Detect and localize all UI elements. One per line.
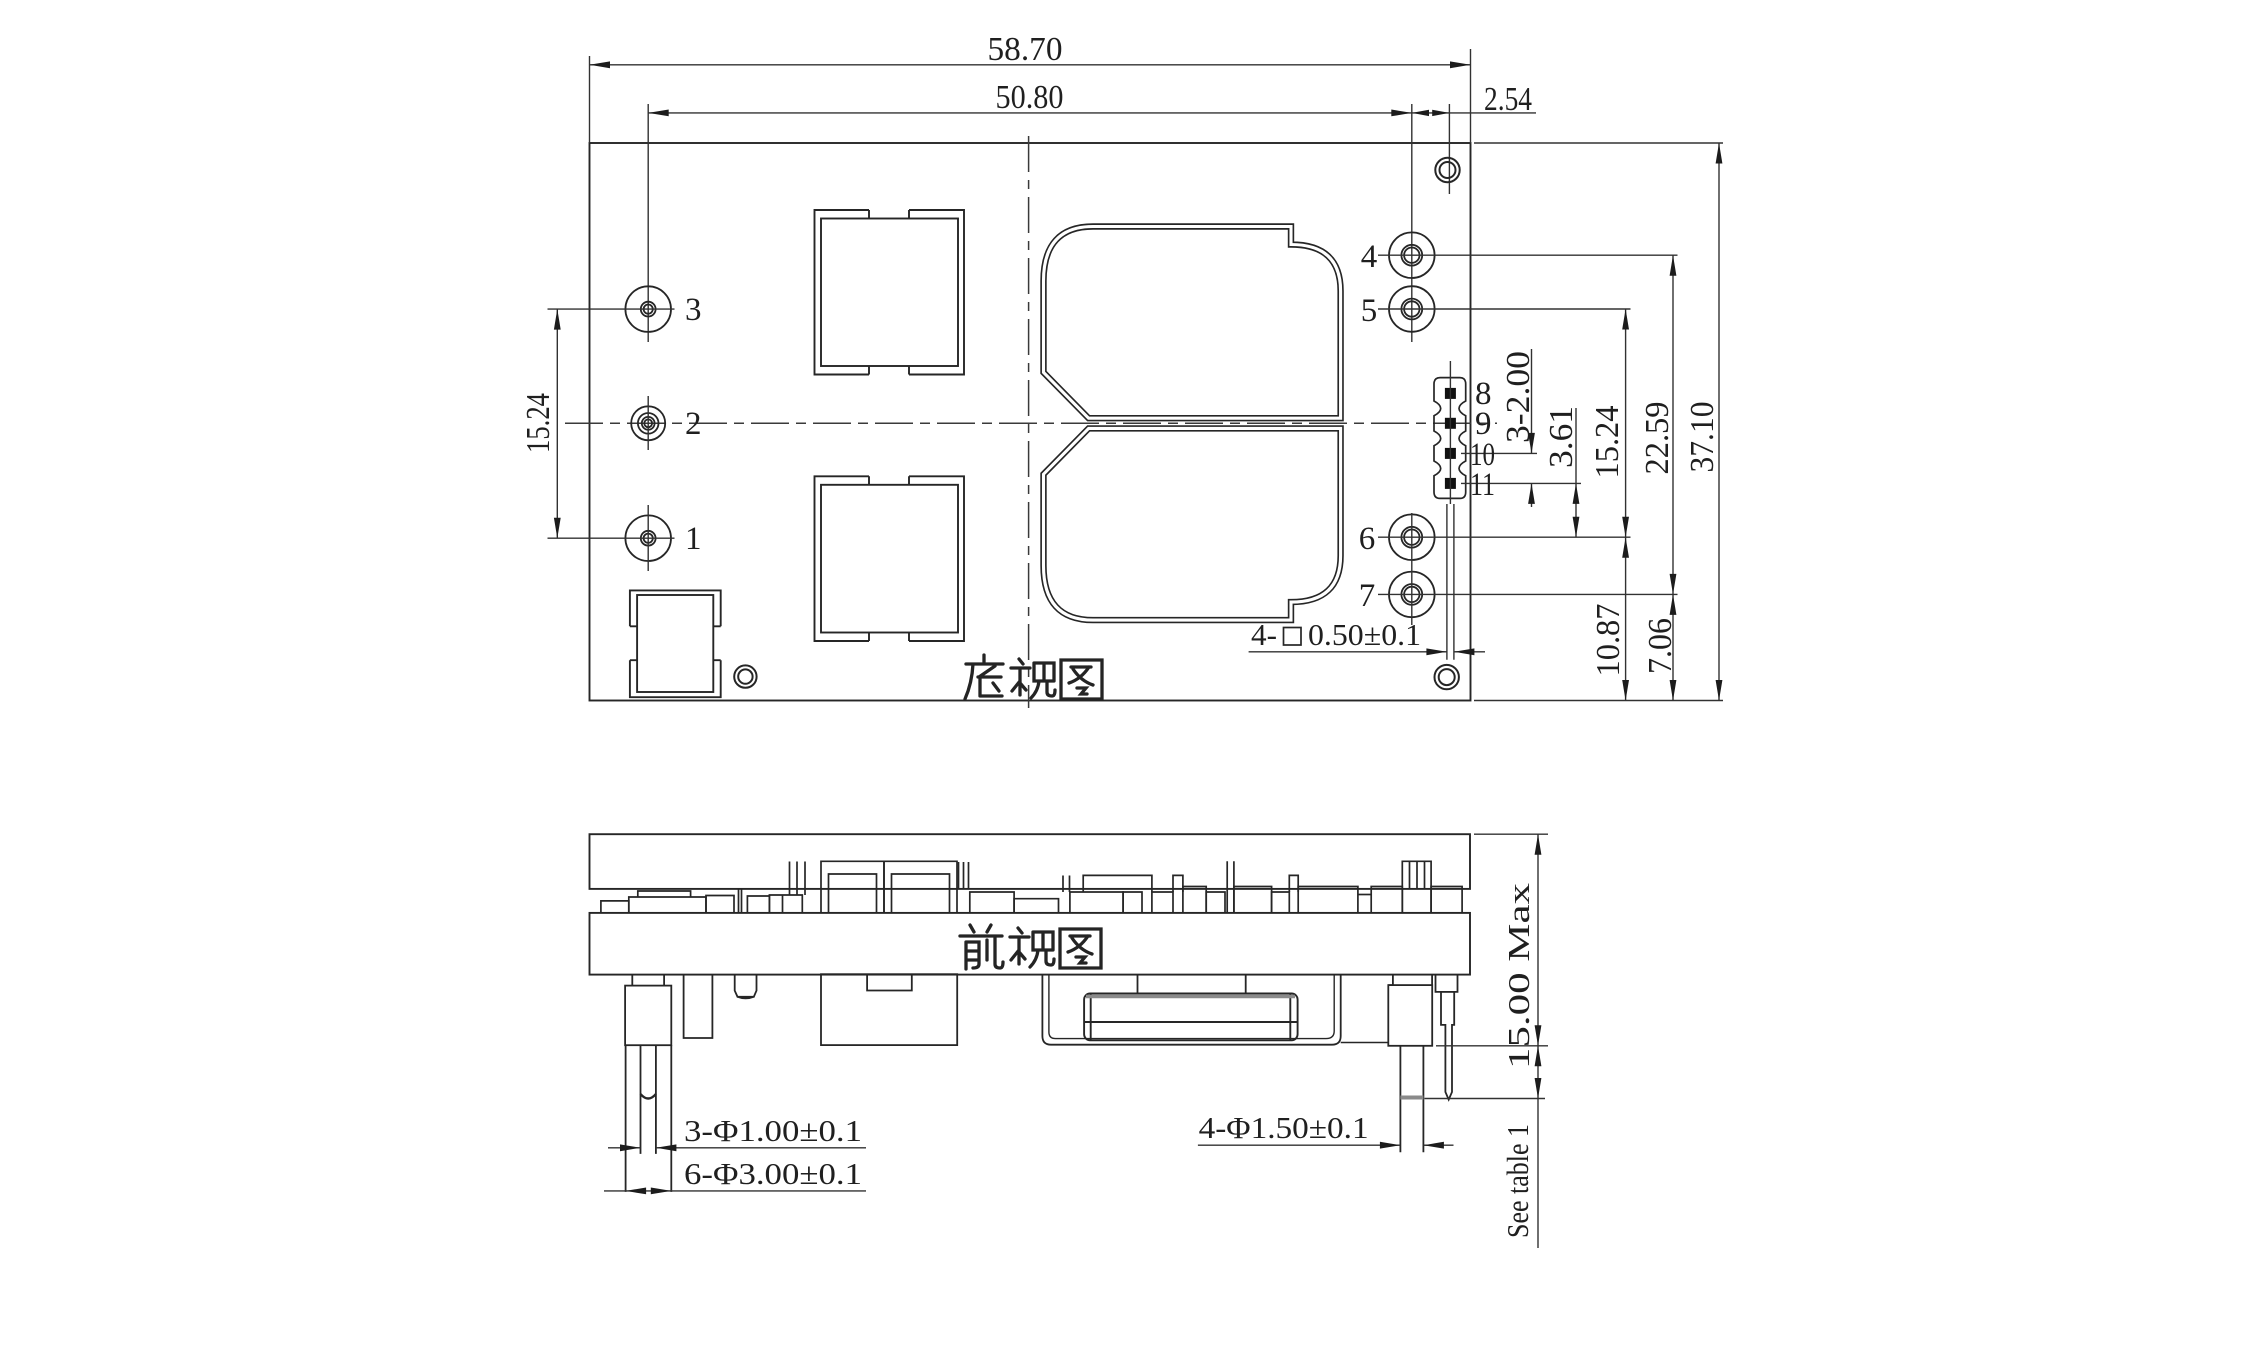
svg-text:4-Φ1.50±0.1: 4-Φ1.50±0.1 <box>1199 1110 1369 1145</box>
svg-text:22.59: 22.59 <box>1639 402 1676 475</box>
svg-text:50.80: 50.80 <box>996 79 1064 116</box>
svg-text:7: 7 <box>1359 578 1376 614</box>
svg-text:15.24: 15.24 <box>1589 406 1626 479</box>
svg-text:10.87: 10.87 <box>1590 604 1627 677</box>
svg-text:15.24: 15.24 <box>520 393 557 453</box>
svg-text:1: 1 <box>685 521 702 557</box>
svg-text:6-Φ3.00±0.1: 6-Φ3.00±0.1 <box>684 1156 862 1191</box>
svg-text:See table 1: See table 1 <box>1500 1124 1535 1238</box>
svg-text:3: 3 <box>685 292 702 328</box>
svg-text:11: 11 <box>1470 467 1495 503</box>
svg-text:58.70: 58.70 <box>988 31 1063 68</box>
svg-text:3-2.00: 3-2.00 <box>1500 351 1537 443</box>
svg-text:3-Φ1.00±0.1: 3-Φ1.00±0.1 <box>684 1113 862 1148</box>
svg-text:15.00 Max: 15.00 Max <box>1501 882 1536 1069</box>
svg-text:6: 6 <box>1359 521 1376 557</box>
svg-text:4-: 4- <box>1251 617 1277 652</box>
svg-text:7.06: 7.06 <box>1642 618 1679 674</box>
svg-text:5: 5 <box>1361 293 1378 329</box>
svg-text:3.61: 3.61 <box>1543 406 1580 468</box>
svg-text:0.50±0.1: 0.50±0.1 <box>1308 617 1421 652</box>
svg-text:37.10: 37.10 <box>1684 402 1721 473</box>
svg-text:4: 4 <box>1361 239 1378 275</box>
svg-text:2: 2 <box>685 406 702 442</box>
svg-text:2.54: 2.54 <box>1484 81 1532 118</box>
